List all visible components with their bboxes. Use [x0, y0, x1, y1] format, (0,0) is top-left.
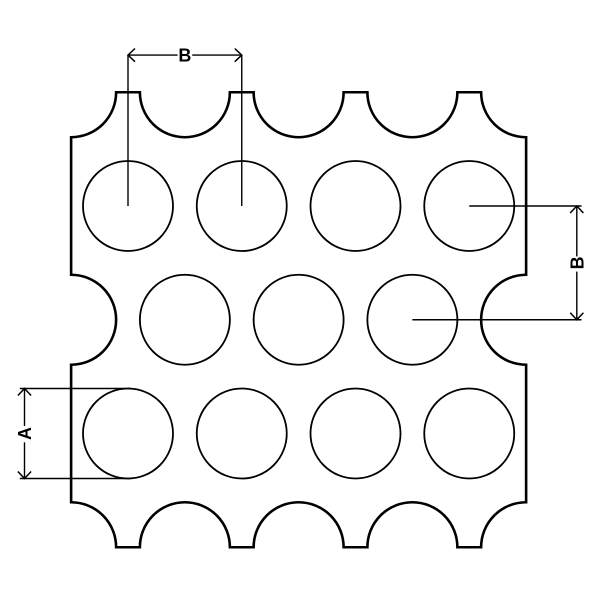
svg-text:A: A [15, 427, 35, 440]
svg-text:B: B [567, 256, 587, 269]
svg-text:B: B [178, 46, 191, 66]
